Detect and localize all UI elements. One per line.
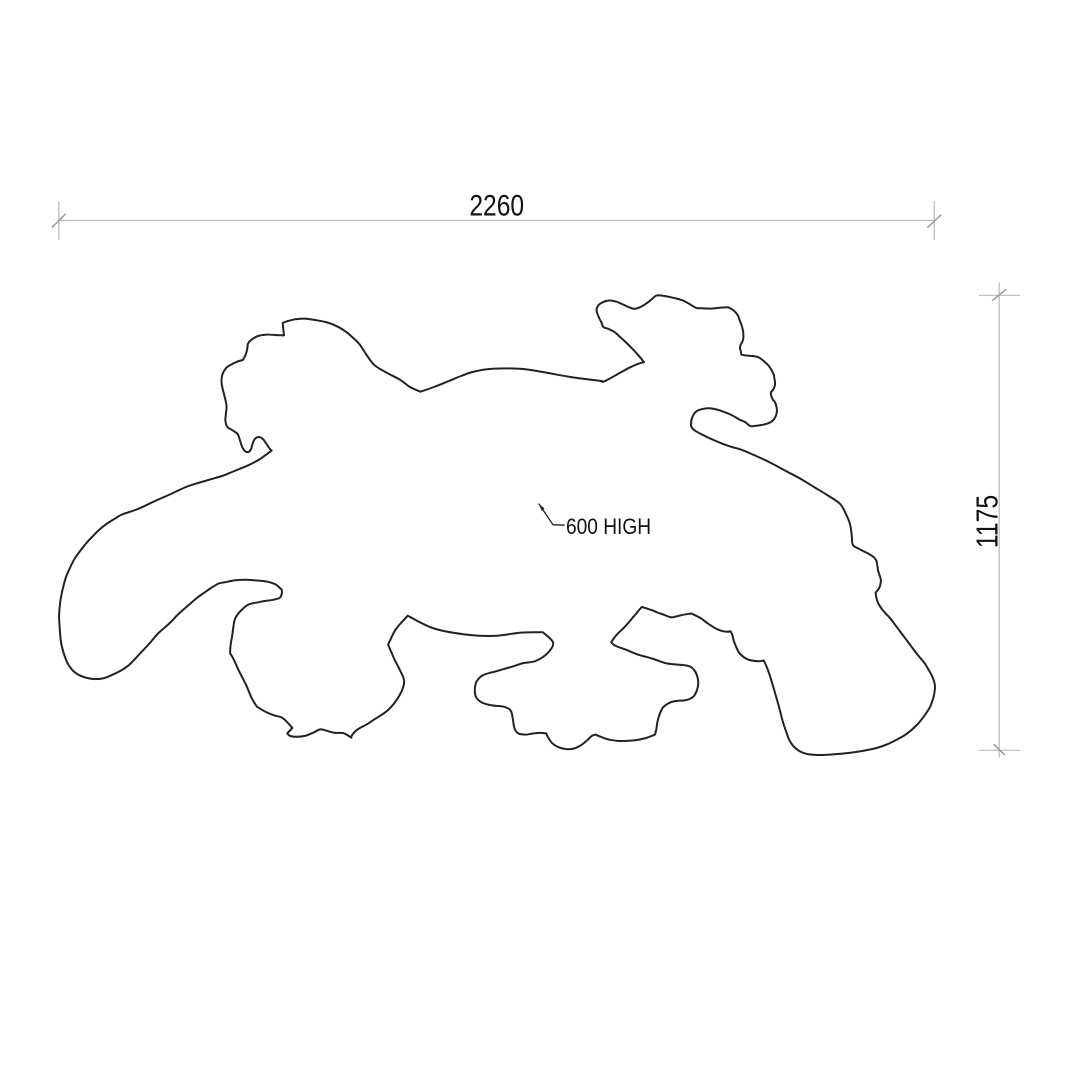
svg-text:2260: 2260 xyxy=(469,188,524,222)
svg-text:1175: 1175 xyxy=(970,495,1004,548)
svg-text:600 HIGH: 600 HIGH xyxy=(566,514,651,539)
